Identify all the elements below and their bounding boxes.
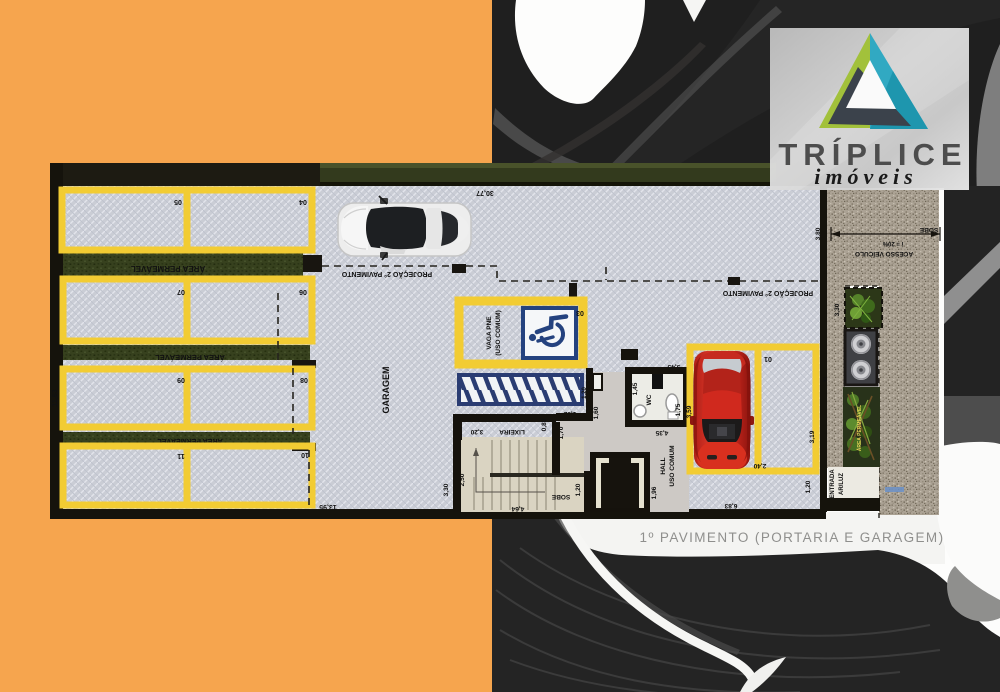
svg-text:ÁREA PERMEÁVEL: ÁREA PERMEÁVEL xyxy=(155,353,225,362)
svg-text:ÁREA PERMEÁVEL: ÁREA PERMEÁVEL xyxy=(856,405,863,452)
svg-text:10: 10 xyxy=(301,451,309,458)
svg-text:05: 05 xyxy=(174,198,182,205)
svg-text:06: 06 xyxy=(299,288,307,295)
svg-text:SOBE: SOBE xyxy=(551,493,570,500)
svg-text:USO COMUM: USO COMUM xyxy=(669,445,676,486)
svg-text:0,80: 0,80 xyxy=(541,418,548,431)
svg-text:(USO COMUM): (USO COMUM) xyxy=(495,310,502,356)
svg-text:30,77: 30,77 xyxy=(476,189,494,196)
svg-text:GARAGEM: GARAGEM xyxy=(381,367,391,414)
svg-text:LIXEIRA: LIXEIRA xyxy=(499,428,525,435)
svg-text:03: 03 xyxy=(576,309,584,316)
svg-text:13,95: 13,95 xyxy=(319,503,337,510)
svg-text:i = 20%: i = 20% xyxy=(882,240,903,246)
svg-text:1,96: 1,96 xyxy=(651,486,658,499)
svg-text:08: 08 xyxy=(300,376,308,383)
svg-text:PROJEÇÃO 2° PAVIMENTO: PROJEÇÃO 2° PAVIMENTO xyxy=(341,270,432,279)
svg-text:WC: WC xyxy=(646,394,653,405)
svg-text:HALL: HALL xyxy=(660,457,667,474)
svg-text:3,30: 3,30 xyxy=(443,483,450,496)
svg-text:ÁREA PERMEÁVEL: ÁREA PERMEÁVEL xyxy=(131,264,205,273)
svg-text:PROJEÇÃO 2° PAVIMENTO: PROJEÇÃO 2° PAVIMENTO xyxy=(722,289,813,298)
svg-text:3,45: 3,45 xyxy=(667,363,680,370)
svg-text:3,80: 3,80 xyxy=(815,227,822,240)
svg-text:SOBE: SOBE xyxy=(919,226,938,233)
svg-text:4,35: 4,35 xyxy=(655,429,668,436)
svg-text:ACESSO VEÍCULO: ACESSO VEÍCULO xyxy=(855,250,913,259)
svg-text:1º PAVIMENTO (PORTARIA E GARAG: 1º PAVIMENTO (PORTARIA E GARAGEM) xyxy=(640,530,945,545)
svg-text:3,30: 3,30 xyxy=(834,303,841,316)
svg-text:04: 04 xyxy=(299,198,307,205)
svg-text:imóveis: imóveis xyxy=(814,164,917,189)
svg-text:AR/LUZ: AR/LUZ xyxy=(839,473,845,495)
svg-text:3,19: 3,19 xyxy=(809,430,816,443)
svg-text:09: 09 xyxy=(177,376,185,383)
svg-text:2,40: 2,40 xyxy=(753,462,766,469)
svg-text:11,63: 11,63 xyxy=(52,389,59,406)
svg-text:4,64: 4,64 xyxy=(511,505,524,512)
svg-text:ENTRADA: ENTRADA xyxy=(830,469,836,499)
svg-text:1,75: 1,75 xyxy=(675,403,682,416)
svg-text:1,45: 1,45 xyxy=(632,382,639,395)
svg-text:11: 11 xyxy=(177,452,185,459)
svg-text:VAGA PNE: VAGA PNE xyxy=(486,316,493,350)
svg-text:01: 01 xyxy=(764,355,772,362)
svg-text:07: 07 xyxy=(177,288,185,295)
svg-text:1,20: 1,20 xyxy=(575,483,582,496)
svg-text:6,83: 6,83 xyxy=(724,502,737,509)
svg-text:1,20: 1,20 xyxy=(805,480,812,493)
svg-text:1,60: 1,60 xyxy=(593,406,600,419)
svg-text:3,20: 3,20 xyxy=(470,428,483,435)
